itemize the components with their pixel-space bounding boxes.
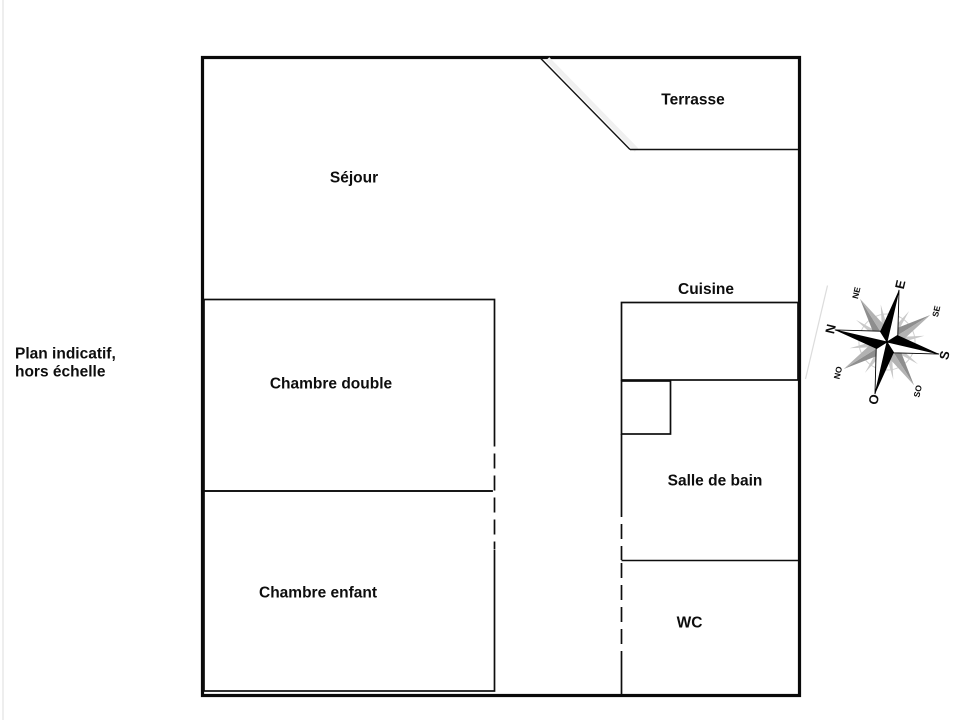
svg-text:Salle de bain: Salle de bain <box>668 473 763 490</box>
svg-text:hors échelle: hors échelle <box>15 364 106 381</box>
svg-text:Chambre double: Chambre double <box>270 376 393 393</box>
svg-text:Chambre enfant: Chambre enfant <box>259 585 377 602</box>
svg-text:Cuisine: Cuisine <box>678 281 734 298</box>
svg-text:Terrasse: Terrasse <box>661 92 725 109</box>
svg-text:Plan indicatif,: Plan indicatif, <box>15 346 116 363</box>
svg-text:WC: WC <box>677 615 703 632</box>
svg-text:Séjour: Séjour <box>330 170 378 187</box>
